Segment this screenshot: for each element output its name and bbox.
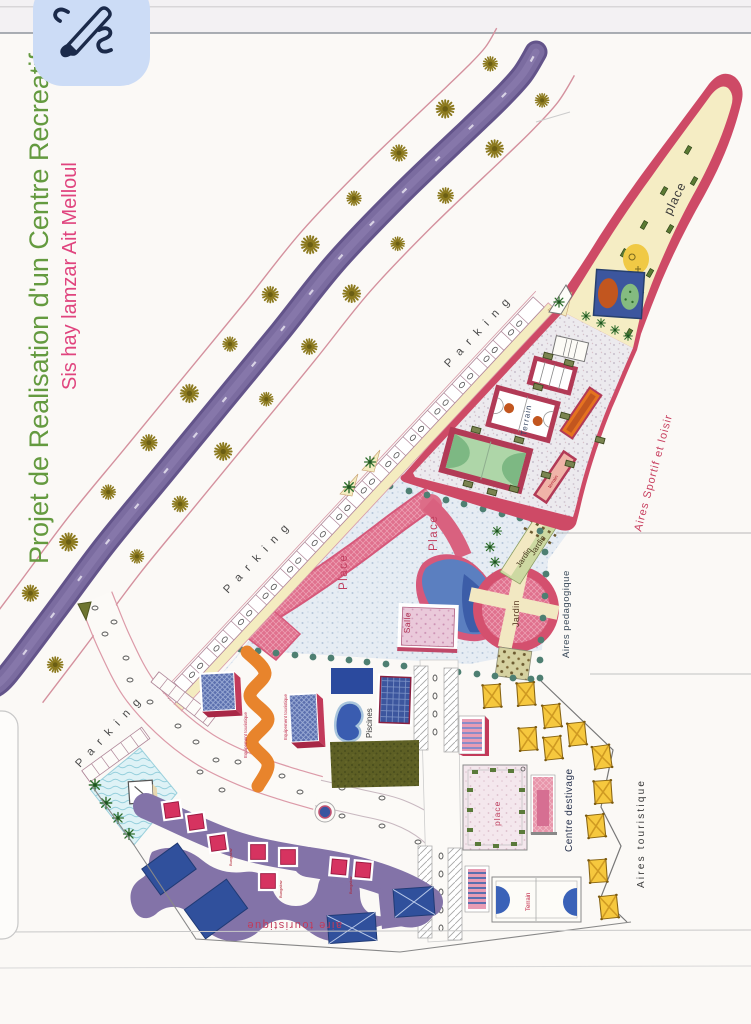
- svg-text:Aires touristique: Aires touristique: [636, 779, 647, 888]
- svg-text:Equipement touristique: Equipement touristique: [283, 693, 288, 740]
- svg-text:place: place: [492, 801, 502, 826]
- svg-text:Piscines: Piscines: [365, 708, 374, 738]
- svg-text:Place: Place: [338, 554, 350, 590]
- svg-text:Equipement touristique: Equipement touristique: [243, 711, 248, 758]
- svg-text:Salle: Salle: [402, 612, 413, 634]
- svg-text:Place: Place: [428, 515, 440, 551]
- svg-text:Bungalow: Bungalow: [348, 876, 353, 894]
- svg-text:Jardin: Jardin: [511, 600, 521, 627]
- svg-text:Terrain: Terrain: [526, 893, 532, 911]
- svg-text:Projet de Realisation d'un Cen: Projet de Realisation d'un Centre Recrea…: [24, 53, 54, 564]
- svg-text:Bungalow: Bungalow: [278, 880, 283, 898]
- svg-text:Sis hay lamzar Ait Melloul: Sis hay lamzar Ait Melloul: [59, 162, 81, 390]
- svg-text:Bungalow: Bungalow: [228, 848, 233, 866]
- svg-text:Centre destivage: Centre destivage: [564, 768, 575, 852]
- svg-text:Aires pedagogique: Aires pedagogique: [561, 570, 572, 658]
- svg-text:aire touristique: aire touristique: [246, 919, 342, 931]
